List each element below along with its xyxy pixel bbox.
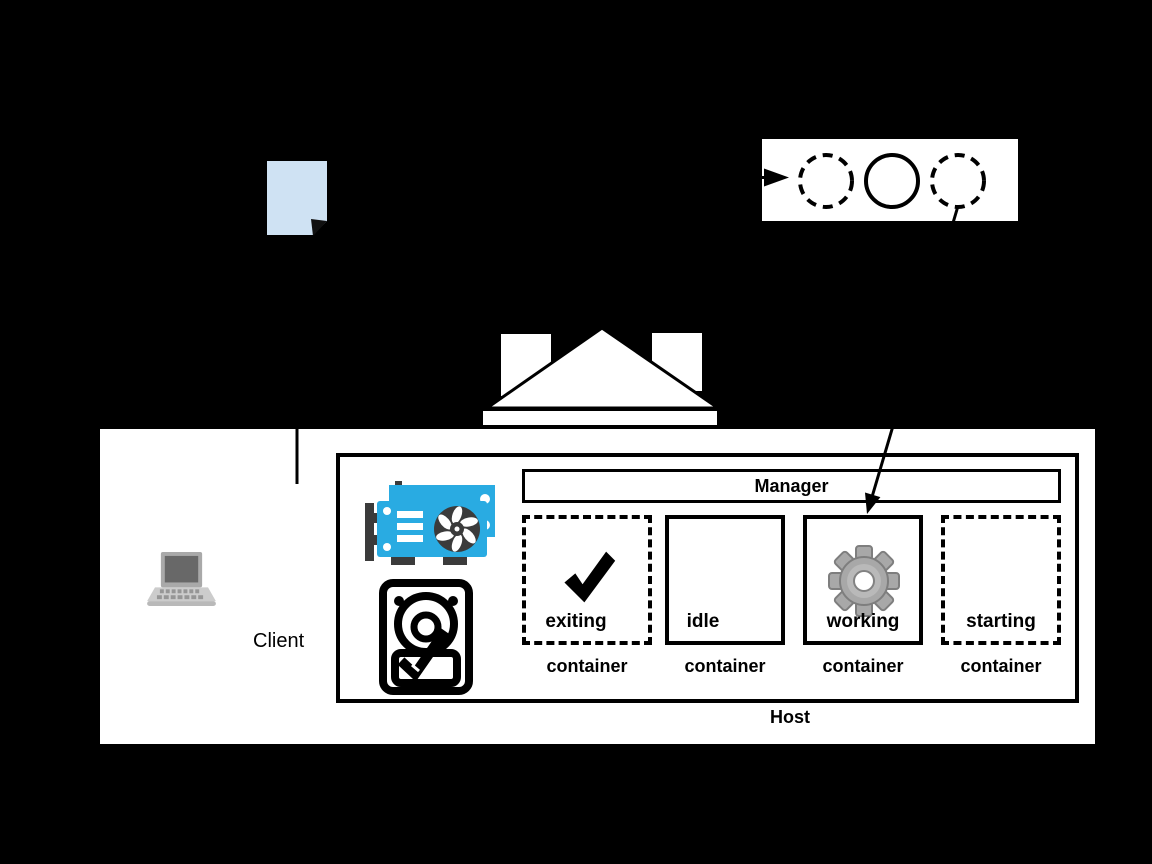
container-caption: container xyxy=(798,656,928,677)
document-icon xyxy=(267,161,327,235)
container-state-label: starting xyxy=(945,611,1057,633)
host-box: Client xyxy=(100,429,1095,744)
gpu-icon xyxy=(365,481,503,565)
runtime-box: Manager exiting idle xyxy=(336,453,1079,703)
container-state-label: exiting xyxy=(515,611,637,633)
container-exiting: exiting xyxy=(522,515,652,645)
checkmark-icon xyxy=(559,548,617,606)
container-lifecycle-strip xyxy=(762,139,1018,221)
host-label: Host xyxy=(770,707,810,728)
laptop-icon xyxy=(147,552,216,607)
container-idle: idle xyxy=(665,515,785,645)
manager-label: Manager xyxy=(754,476,828,497)
container-starting: starting xyxy=(941,515,1061,645)
container-state-label: idle xyxy=(647,611,759,633)
hard-disk-icon xyxy=(379,579,473,695)
container-working: working xyxy=(803,515,923,645)
container-caption: container xyxy=(522,656,652,677)
client-label: Client xyxy=(253,630,304,653)
gear-icon xyxy=(828,545,900,617)
diagram-canvas: Client xyxy=(0,0,1152,864)
container-caption: container xyxy=(936,656,1066,677)
dashed-circle-icon xyxy=(932,155,984,207)
container-state-label: working xyxy=(807,611,919,633)
manager-bar: Manager xyxy=(522,469,1061,503)
dashed-circle-icon xyxy=(800,155,852,207)
container-caption: container xyxy=(660,656,790,677)
house-shape xyxy=(478,326,726,426)
solid-circle-icon xyxy=(866,155,918,207)
